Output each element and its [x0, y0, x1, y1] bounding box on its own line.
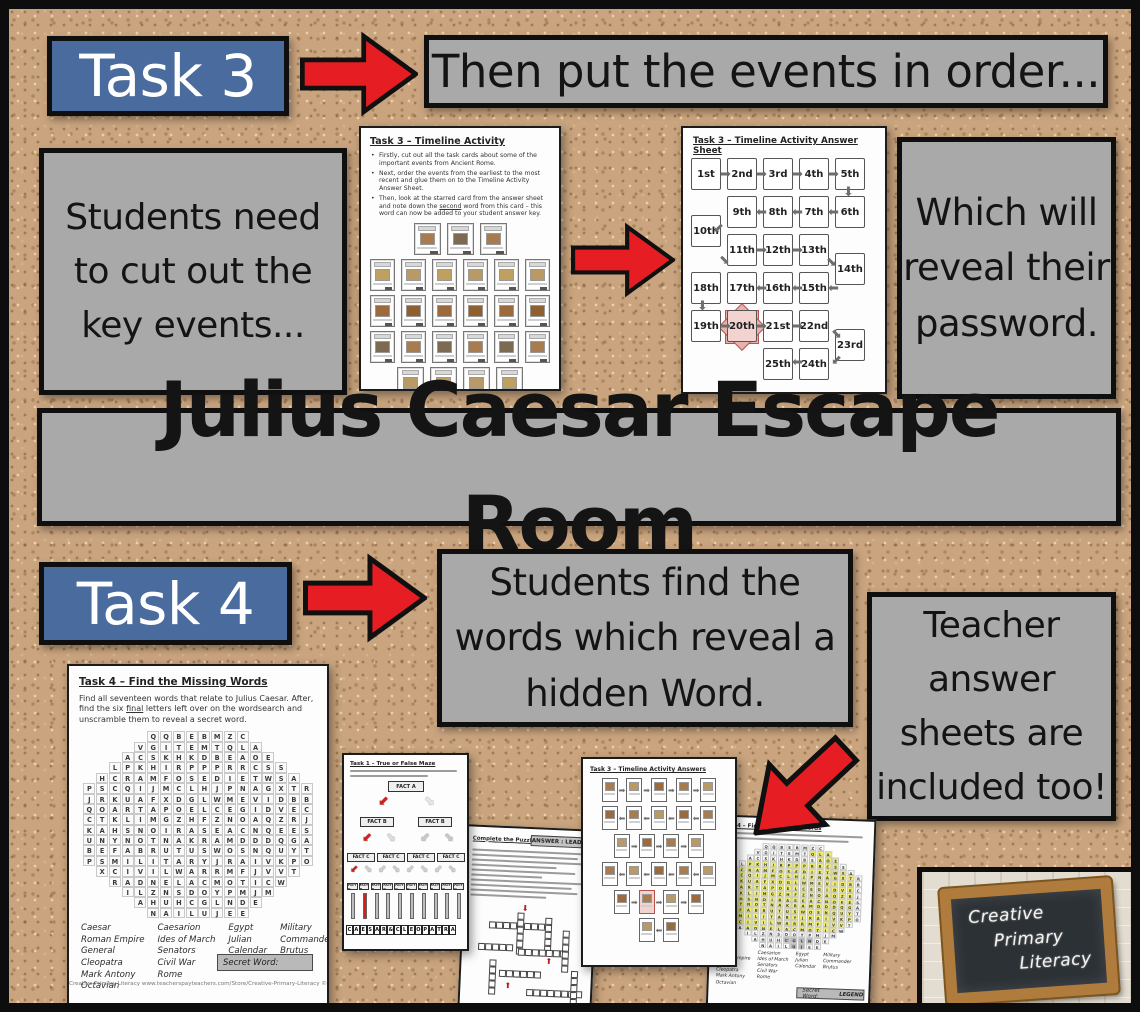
flow-arrow-icon: ⬅ — [693, 814, 700, 823]
flow-arrow-icon: ➡ — [631, 898, 638, 907]
letter-cell: D — [237, 835, 249, 845]
card-image — [679, 810, 689, 819]
letter-cell: I — [250, 856, 262, 866]
timeline-answers-preview: Task 3 – Timeline Activity Answers ➡➡➡➡⬅… — [581, 757, 737, 967]
wordsearch-row: CTKLIMGZHFZNOAQZRJ — [79, 814, 317, 824]
letter-cell: P — [198, 762, 210, 772]
crossword-cell — [534, 971, 541, 978]
answer-task-card — [602, 862, 618, 886]
maze-arrow-icon: ⬊ — [420, 865, 428, 875]
letter-cell: O — [96, 804, 108, 814]
answer-task-card — [663, 918, 679, 942]
card-word-mark — [385, 287, 392, 290]
letter-cell: B — [173, 731, 185, 741]
answer-letter-cell: R — [380, 925, 387, 935]
letter-cell: U — [275, 845, 287, 855]
card-image — [642, 922, 652, 931]
letter-cell: U — [790, 943, 797, 949]
card-image — [629, 810, 639, 819]
card-word-mark — [478, 323, 485, 326]
word-list-item: Mark Antony — [81, 970, 145, 982]
key-bar — [386, 893, 390, 919]
flow-arrow-icon: ⬅ — [619, 870, 626, 879]
card-image — [530, 305, 545, 317]
flow-arrow-icon: ⬅ — [656, 926, 663, 935]
letter-cell: I — [147, 866, 159, 876]
key-bar — [375, 893, 379, 919]
letter-cell: C — [109, 866, 121, 876]
letter-cell: H — [173, 752, 185, 762]
word-list-column: EgyptJulianCalendar — [794, 952, 816, 990]
maze-arrow-icon: ⬋ — [406, 865, 414, 875]
card-image — [605, 782, 615, 791]
task-card — [414, 223, 441, 255]
answer-task-card — [626, 806, 642, 830]
word-list-item: Caesarion — [158, 923, 216, 935]
letter-cell: M — [147, 814, 159, 824]
timeline-cell-15th: 15th — [799, 272, 829, 304]
letter-cell: L — [198, 794, 210, 804]
timeline-cell-9th: 9th — [727, 196, 757, 228]
fact-box: FACT D — [371, 883, 382, 890]
card-text-line — [678, 793, 689, 795]
letter-cell: I — [160, 825, 172, 835]
letter-cell: N — [224, 897, 236, 907]
letter-cell: R — [736, 924, 743, 930]
answer-letter-cell: C — [394, 925, 401, 935]
answer-letter-cell: T — [436, 925, 443, 935]
wordsearch-row: KAHSNOIRASEACNQEES — [79, 825, 317, 835]
fact-box: FACT D — [441, 883, 452, 890]
letter-cell: E — [224, 804, 236, 814]
flow-arrow-icon: ⬇ — [843, 186, 854, 199]
card-image — [420, 233, 435, 245]
letter-cell: Q — [160, 731, 172, 741]
letter-cell: S — [262, 762, 274, 772]
fact-box: FACT D — [418, 883, 429, 890]
letter-cell: L — [237, 742, 249, 752]
letter-cell: M — [211, 731, 223, 741]
letter-cell: M — [211, 877, 223, 887]
letter-cell: A — [122, 845, 134, 855]
letter-cell: A — [160, 908, 172, 918]
letter-cell: Z — [275, 814, 287, 824]
letter-cell: Y — [288, 845, 300, 855]
card-date-bar — [405, 298, 421, 303]
letter-cell: B — [83, 845, 95, 855]
card-text-line — [616, 849, 627, 851]
letter-cell: S — [237, 845, 249, 855]
letter-cell: A — [122, 877, 134, 887]
letter-cell: E — [262, 752, 274, 762]
letter-cell: F — [198, 814, 210, 824]
letter-cell: A — [250, 814, 262, 824]
fact-box: FACT B — [360, 817, 394, 827]
then-banner: Then put the events in order... — [424, 35, 1108, 108]
letter-cell: E — [237, 908, 249, 918]
letter-cell: L — [109, 762, 121, 772]
flow-arrow-icon: ➡ — [631, 842, 638, 851]
fact-box: FACT D — [394, 883, 405, 890]
letter-cell: T — [211, 742, 223, 752]
flow-arrow-icon: ➡ — [693, 786, 700, 795]
answer-letter-cell: A — [353, 925, 360, 935]
letter-cell: Z — [211, 814, 223, 824]
answer-card-row: ⬅⬅⬅⬅ — [590, 806, 728, 830]
answer-task-card — [700, 806, 716, 830]
letter-cell: U — [83, 835, 95, 845]
letter-cell: D — [134, 877, 146, 887]
red-arrow-right-icon — [300, 31, 418, 117]
letter-cell: C — [237, 825, 249, 835]
card-date-bar — [418, 226, 436, 231]
letter-cell: B — [134, 845, 146, 855]
key-bar — [445, 893, 449, 919]
card-date-bar — [467, 262, 483, 267]
letter-cell: N — [224, 814, 236, 824]
wordsearch-row: ILZNSDOYPMJM — [79, 887, 317, 897]
card-image — [654, 810, 664, 819]
letter-cell: M — [830, 933, 837, 939]
card-image — [486, 233, 501, 245]
answer-task-card — [602, 778, 618, 802]
fact-box: FACT D — [347, 883, 358, 890]
card-word-mark — [540, 323, 547, 326]
card-text-line — [435, 283, 453, 285]
letter-cell: S — [186, 773, 198, 783]
letter-cell: E — [186, 742, 198, 752]
question-text-line — [470, 893, 546, 899]
card-word-mark — [416, 287, 423, 290]
letter-cell: G — [160, 814, 172, 824]
card-row — [370, 223, 550, 255]
letter-cell: U — [198, 908, 210, 918]
letter-cell: F — [147, 794, 159, 804]
maze-title: Task 1 – True or False Maze — [350, 761, 461, 767]
card-row — [370, 259, 550, 291]
letter-cell: C — [250, 762, 262, 772]
task3-banner: Task 3 — [47, 36, 289, 116]
letter-cell: Y — [198, 856, 210, 866]
letter-cell: V — [134, 866, 146, 876]
red-arrow-right-icon — [303, 553, 427, 643]
card-image — [617, 894, 627, 903]
letter-cell: Q — [83, 804, 95, 814]
flow-arrow-icon: ➡ — [828, 168, 839, 181]
letter-cell: E — [186, 804, 198, 814]
answer-card-row: ➡➡➡➡ — [590, 778, 728, 802]
letter-cell: E — [237, 794, 249, 804]
timeline-cell-12th: 12th — [763, 234, 793, 266]
card-image — [703, 782, 713, 791]
letter-cell: A — [767, 942, 774, 948]
flow-arrow-icon: ➡ — [756, 244, 767, 257]
card-image — [375, 269, 390, 281]
timeline-cell-21st: 21st — [763, 310, 793, 342]
letter-cell: R — [224, 856, 236, 866]
letter-cell: R — [122, 804, 134, 814]
letter-cell: I — [173, 908, 185, 918]
letter-cell: N — [134, 825, 146, 835]
answer-task-card — [651, 862, 667, 886]
card-text-line — [528, 319, 546, 321]
letter-cell: C — [109, 783, 121, 793]
letter-cell: I — [262, 794, 274, 804]
main-title-text: Julius Caesar Escape Room — [42, 353, 1116, 581]
answer-task-card — [614, 834, 630, 858]
letter-cell: C — [186, 897, 198, 907]
card-text-line — [404, 283, 422, 285]
answer-letter-cell: L — [401, 925, 408, 935]
card-text-line — [450, 247, 470, 249]
card-text-line — [703, 877, 714, 879]
letter-cell: C — [301, 804, 313, 814]
letter-cell: G — [237, 804, 249, 814]
letter-cell: H — [109, 825, 121, 835]
fact-box: FACT C — [377, 853, 405, 862]
letter-cell: T — [288, 783, 300, 793]
letter-cell: E — [160, 877, 172, 887]
card-date-bar — [529, 262, 545, 267]
letter-cell: B — [198, 731, 210, 741]
card-date-bar — [451, 226, 469, 231]
task-card — [401, 259, 426, 291]
letter-cell: I — [160, 742, 172, 752]
letter-cell: A — [237, 752, 249, 762]
card-text-line — [483, 247, 503, 249]
secret-word-label: Secret Word: — [223, 958, 278, 968]
letter-cell: G — [262, 783, 274, 793]
card-text-line — [417, 247, 437, 249]
answer-task-card — [602, 806, 618, 830]
card-image — [654, 782, 664, 791]
letter-cell: P — [224, 887, 236, 897]
letter-cell: N — [250, 825, 262, 835]
letter-cell: E — [237, 773, 249, 783]
letter-cell: P — [160, 804, 172, 814]
flow-arrow-icon: ➡ — [792, 320, 803, 333]
task-card — [432, 259, 457, 291]
letter-cell: J — [301, 814, 313, 824]
card-image — [499, 341, 514, 353]
card-text-line — [528, 283, 546, 285]
card-date-bar — [498, 262, 514, 267]
flow-arrow-icon: ➡ — [720, 320, 731, 333]
letter-cell: T — [173, 845, 185, 855]
word-list-column: MilitaryCommanderBrutus — [822, 953, 852, 991]
letter-cell: V — [262, 856, 274, 866]
letter-cell: O — [173, 804, 185, 814]
wordsearch-row: XCIVILWARRMFJVVT — [79, 866, 317, 876]
card-image — [703, 866, 713, 875]
letter-cell: B — [301, 794, 313, 804]
word-list-item: Roman Empire — [81, 935, 145, 947]
flow-arrow-icon: ➡ — [680, 842, 687, 851]
answer-card-row: ➡➡➡ — [590, 834, 728, 858]
letter-cell: A — [109, 804, 121, 814]
flow-arrow-icon: ⬊ — [831, 328, 842, 341]
letter-cell: S — [301, 825, 313, 835]
maze-arrow-icon: ⬋ — [420, 831, 430, 843]
letter-cell: I — [122, 856, 134, 866]
card-text-line — [641, 933, 652, 935]
answer-letter-row: CAESAR&CLEOPATRA — [346, 925, 456, 935]
letter-cell: R — [301, 783, 313, 793]
word-list-item: Octavian — [716, 980, 750, 987]
fact-box: FACT D — [406, 883, 417, 890]
answer-card-row: ⬅⬅⬅⬅ — [590, 862, 728, 886]
flow-arrow-icon: ⬅ — [643, 870, 650, 879]
letter-cell: R — [173, 825, 185, 835]
letter-cell: R — [224, 762, 236, 772]
word-list-item: General — [81, 946, 145, 958]
task3-right-note-text: Which will reveal their password. — [902, 185, 1111, 352]
letter-cell: D — [211, 773, 223, 783]
card-image — [406, 269, 421, 281]
letter-cell: O — [854, 916, 861, 922]
wordsearch-row: ACSKHKDBEAOE — [79, 752, 317, 762]
secret-word-box: Secret Word: — [217, 954, 313, 971]
card-date-bar — [498, 334, 514, 339]
task4-banner: Task 4 — [39, 562, 292, 645]
answer-task-card — [651, 806, 667, 830]
fact-box: FACT C — [347, 853, 375, 862]
card-text-line — [703, 793, 714, 795]
flow-arrow-icon: ➡ — [619, 786, 626, 795]
letter-cell: J — [250, 866, 262, 876]
card-text-line — [497, 283, 515, 285]
maze-arrow-icon: ⬋ — [378, 865, 386, 875]
word-list-item: Civil War — [158, 958, 216, 970]
wordsearch-row: BEFABRUTUSWOSNQUYT — [79, 845, 317, 855]
card-image — [530, 341, 545, 353]
letter-cell: J — [250, 887, 262, 897]
letter-cell: Y — [211, 887, 223, 897]
flow-arrow-icon: ⬊ — [826, 256, 837, 269]
worksheet-footer: Creative Primary Literacy www.teacherspa… — [69, 981, 327, 987]
letter-cell: M — [237, 887, 249, 897]
letter-cell: N — [160, 835, 172, 845]
letter-cell: C — [173, 783, 185, 793]
answer-letter-cell: C — [346, 925, 353, 935]
task4-worksheet-preview: Task 4 – Find the Missing Words Find all… — [67, 664, 329, 1009]
letter-cell: R — [198, 866, 210, 876]
letter-cell: K — [186, 752, 198, 762]
task4-note: Students find the words which reveal a h… — [437, 549, 853, 727]
letter-cell: M — [224, 794, 236, 804]
fact-box: FACT C — [407, 853, 435, 862]
letter-cell: K — [109, 814, 121, 824]
letter-cell: A — [186, 877, 198, 887]
task3-worksheet-bullets: Firstly, cut out all the task cards abou… — [370, 152, 550, 218]
letter-cell: U — [122, 794, 134, 804]
letter-cell: Q — [275, 835, 287, 845]
card-date-bar — [374, 298, 390, 303]
letter-cell: M — [262, 887, 274, 897]
letter-cell: A — [237, 856, 249, 866]
letter-cell: Y — [109, 835, 121, 845]
letter-cell: J — [147, 783, 159, 793]
wordsearch-row: VGITEMTQLA — [79, 742, 317, 752]
letter-cell: A — [173, 835, 185, 845]
card-text-line — [641, 905, 652, 907]
letter-cell: T — [237, 877, 249, 887]
card-text-line — [629, 821, 640, 823]
letter-cell: A — [224, 825, 236, 835]
letter-cell: J — [211, 908, 223, 918]
answer-task-card — [676, 806, 692, 830]
card-word-mark — [496, 251, 504, 254]
letter-cell: O — [198, 887, 210, 897]
letter-cell: C — [211, 804, 223, 814]
wordsearch-row: PSCQIJMCLHJPNAGXTR — [79, 783, 317, 793]
maze-arrow-icon: ⬊ — [386, 831, 396, 843]
letter-cell: M — [147, 773, 159, 783]
flow-arrow-icon: ➡ — [792, 244, 803, 257]
maze-arrow-icon: ⬋ — [350, 865, 358, 875]
letter-cell: Q — [147, 731, 159, 741]
letter-cell: E — [96, 845, 108, 855]
card-image — [530, 269, 545, 281]
letter-cell: N — [759, 942, 766, 948]
letter-cell: M — [198, 742, 210, 752]
letter-cell: S — [96, 856, 108, 866]
flow-arrow-icon: ➡ — [756, 320, 767, 333]
answer-task-card — [651, 778, 667, 802]
wordsearch-grid: QQBEBMZCVGITEMTQLAACSKHKDBEAOELPKHIRPPPR… — [79, 731, 317, 918]
letter-cell: Q — [224, 742, 236, 752]
red-arrow-right-icon — [571, 219, 675, 301]
letter-cell: D — [250, 835, 262, 845]
card-image — [605, 866, 615, 875]
letter-cell: F — [160, 773, 172, 783]
flow-arrow-icon: ➡ — [680, 898, 687, 907]
letter-cell: I — [134, 783, 146, 793]
flow-arrow-icon: ⬅ — [756, 282, 767, 295]
answer-task-card — [626, 862, 642, 886]
letter-cell: X — [275, 783, 287, 793]
letter-cell: A — [211, 835, 223, 845]
letter-cell: T — [160, 856, 172, 866]
timeline-answers-cards: ➡➡➡➡⬅⬅⬅⬅➡➡➡⬅⬅⬅⬅➡➡➡⬅ — [590, 778, 728, 942]
card-date-bar — [436, 334, 452, 339]
letter-cell: G — [147, 742, 159, 752]
card-word-mark — [416, 323, 423, 326]
maze-arrow-icon: ⬋ — [434, 865, 442, 875]
flow-arrow-icon: ⬊ — [719, 254, 730, 267]
letter-cell: J — [83, 794, 95, 804]
wordsearch-row: NAILUJEE — [79, 908, 317, 918]
flow-arrow-icon: ⬅ — [619, 814, 626, 823]
timeline-cell-8th: 8th — [763, 196, 793, 228]
word-list-item: Caesar — [81, 923, 145, 935]
card-text-line — [466, 319, 484, 321]
letter-cell: E — [250, 897, 262, 907]
answer-task-card — [663, 890, 679, 914]
letter-cell: M — [109, 856, 121, 866]
letter-cell: N — [96, 835, 108, 845]
flow-arrow-icon: ⬅ — [756, 206, 767, 219]
letter-cell: T — [288, 866, 300, 876]
crossword-cell — [488, 987, 495, 994]
letter-cell: O — [173, 773, 185, 783]
letter-cell: B — [288, 794, 300, 804]
maze-tree: FACT AFACT BFACT BFACT CFACT CFACT CFACT… — [344, 779, 467, 947]
card-image — [654, 866, 664, 875]
letter-cell: O — [250, 752, 262, 762]
letter-cell: P — [224, 783, 236, 793]
card-image — [437, 341, 452, 353]
